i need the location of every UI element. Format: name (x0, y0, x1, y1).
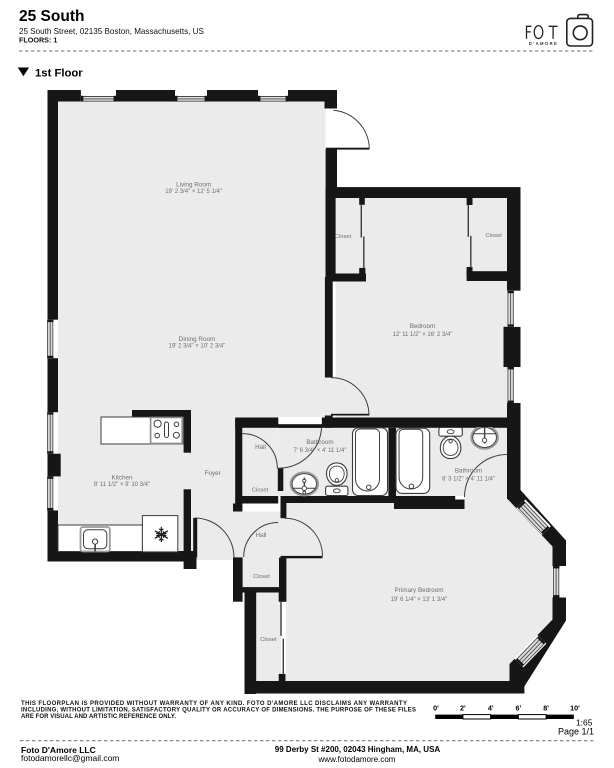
svg-text:www.fotodamore.com: www.fotodamore.com (318, 755, 396, 764)
svg-text:FLOORS: 1: FLOORS: 1 (19, 36, 57, 45)
svg-text:99 Derby St #200, 02043 Hingha: 99 Derby St #200, 02043 Hingham, MA, USA (275, 745, 441, 754)
svg-text:D'AMORE: D'AMORE (529, 41, 558, 46)
svg-text:19' 2 3/4" × 12' 5 1/4": 19' 2 3/4" × 12' 5 1/4" (165, 189, 222, 195)
svg-text:fotodamorellc@gmail.com: fotodamorellc@gmail.com (21, 753, 119, 763)
svg-text:6': 6' (516, 704, 522, 713)
svg-text:8' 3 1/2" × 4' 11 1/4": 8' 3 1/2" × 4' 11 1/4" (442, 477, 495, 483)
svg-text:Closet: Closet (252, 488, 269, 494)
svg-text:1st Floor: 1st Floor (35, 68, 83, 80)
svg-text:7' 6 3/4" × 4' 11 1/4": 7' 6 3/4" × 4' 11 1/4" (294, 448, 347, 454)
svg-text:Bathroom: Bathroom (455, 468, 482, 475)
svg-text:8': 8' (543, 704, 549, 713)
svg-text:INCLUDING, WITHOUT LIMITATION,: INCLUDING, WITHOUT LIMITATION, SATISFACT… (21, 708, 416, 714)
svg-text:25 South: 25 South (19, 8, 84, 25)
svg-text:Hall: Hall (256, 532, 267, 539)
svg-text:Closet: Closet (335, 234, 352, 240)
svg-text:Primary Bedroom: Primary Bedroom (395, 587, 444, 594)
svg-text:12' 11 1/2" × 16' 2 3/4": 12' 11 1/2" × 16' 2 3/4" (393, 332, 453, 338)
svg-text:2': 2' (460, 704, 466, 713)
svg-text:Hall: Hall (255, 444, 266, 451)
svg-text:Page 1/1: Page 1/1 (558, 727, 594, 737)
svg-text:4': 4' (488, 704, 494, 713)
svg-text:0': 0' (433, 704, 439, 713)
svg-text:Living Room: Living Room (176, 181, 211, 188)
svg-text:Foyer: Foyer (205, 470, 221, 477)
svg-text:10': 10' (570, 704, 580, 713)
svg-text:Dining Room: Dining Room (179, 336, 215, 343)
svg-text:ARE FOR VISUAL AND ARTISTIC RE: ARE FOR VISUAL AND ARTISTIC REFERENCE ON… (21, 714, 176, 720)
svg-text:Bathroom: Bathroom (306, 439, 333, 446)
svg-text:THIS FLOORPLAN IS PROVIDED WIT: THIS FLOORPLAN IS PROVIDED WITHOUT WARRA… (21, 701, 407, 707)
svg-text:Closet: Closet (253, 574, 270, 580)
svg-text:19' 2 3/4" × 10' 2 3/4": 19' 2 3/4" × 10' 2 3/4" (169, 344, 226, 350)
svg-text:19' 6 1/4" × 13' 1 3/4": 19' 6 1/4" × 13' 1 3/4" (391, 597, 448, 603)
svg-text:Bedroom: Bedroom (410, 323, 436, 330)
svg-text:Closet: Closet (485, 233, 502, 239)
svg-text:Closet: Closet (260, 637, 277, 643)
svg-text:Kitchen: Kitchen (111, 475, 133, 482)
svg-text:8' 11 1/2" × 9' 10 3/4": 8' 11 1/2" × 9' 10 3/4" (94, 482, 150, 488)
